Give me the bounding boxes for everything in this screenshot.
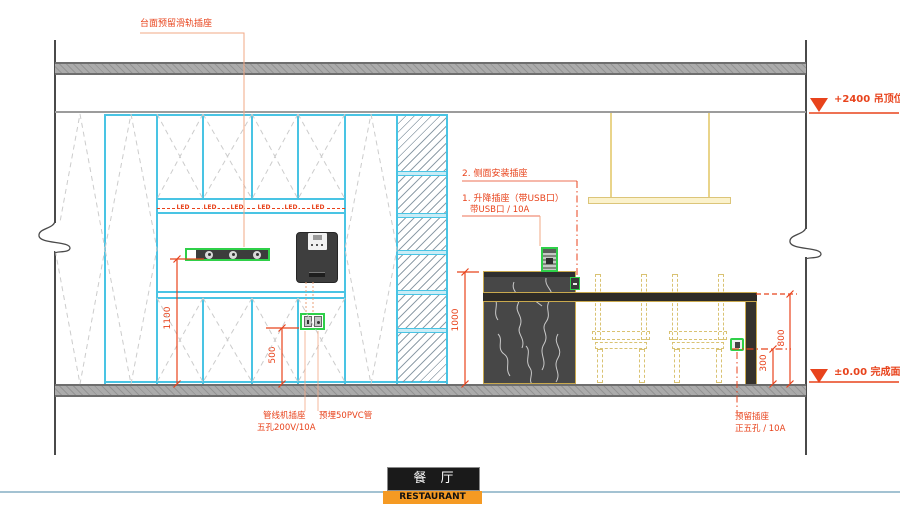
cabinet-vline [104, 114, 106, 384]
led-label: LED [284, 204, 299, 211]
cabinet-divider [202, 298, 204, 384]
rail-socket-outlet-icon [205, 251, 213, 259]
room-title-en: RESTAURANT [383, 491, 482, 504]
led-label: LED [203, 204, 218, 211]
dim-1100: 1100 [163, 298, 175, 338]
dim-300: 300 [759, 343, 771, 383]
annotation-lift-socket-line1: 1. 升降插座（带USB口） [462, 195, 564, 205]
pipeline-water-dispenser [296, 232, 338, 283]
dining-chair [592, 273, 650, 384]
cabinet-divider [297, 114, 299, 199]
side-mounted-socket [570, 277, 580, 290]
cabinet-divider [251, 114, 253, 199]
elevation-drawing-canvas: LED LED LED LED LED LED [0, 0, 900, 506]
annotation-rail-socket: 台面预留滑轨插座 [140, 20, 212, 30]
lift-pop-up-socket [541, 247, 558, 272]
ceiling-level-text: +2400 吊顶位 [834, 94, 900, 105]
annotation-reserved-socket-line1: 预留插座 [735, 413, 769, 422]
ceiling-level-marker-icon [810, 98, 828, 112]
upper-cabinet-bottom-line [156, 212, 346, 214]
table-leg [745, 302, 757, 384]
marble-island [483, 271, 576, 384]
glass-cabinet-vline [446, 114, 448, 384]
glass-shelf [398, 328, 446, 333]
socket-icon [314, 316, 322, 327]
pendant-cord-left [610, 113, 612, 198]
cabinet-divider [297, 298, 299, 384]
dim-800: 800 [777, 318, 789, 358]
glass-shelf [398, 213, 446, 218]
dining-chair [669, 273, 727, 384]
led-label: LED [311, 204, 326, 211]
usb-port-icon [546, 258, 553, 264]
floor-level-marker-icon [810, 369, 828, 383]
suspended-ceiling-line [55, 111, 806, 113]
counter-line [156, 291, 346, 293]
floor-slab [55, 384, 806, 397]
rail-socket-outlet-icon [229, 251, 237, 259]
annotation-lift-socket-line2: 带USB口 / 10A [470, 206, 529, 215]
cabinet-vline [344, 114, 346, 384]
led-strip-line: LED LED LED LED LED LED [157, 208, 345, 209]
cabinet-divider [251, 298, 253, 384]
rail-socket-outlet-icon [253, 251, 261, 259]
annotation-pipeline-socket-line1: 管线机插座 [263, 412, 306, 421]
led-label: LED [230, 204, 245, 211]
socket-icon [304, 316, 312, 327]
cabinet-socket-pair [300, 313, 325, 330]
ceiling-slab [55, 62, 806, 75]
pendant-cord-right [708, 113, 710, 198]
dim-500: 500 [268, 335, 280, 375]
annotation-pipeline-socket-line2: 五孔200V/10A [257, 424, 316, 433]
dim-1000: 1000 [451, 300, 463, 340]
cabinet-bottom-line [104, 381, 448, 383]
glass-shelf [398, 250, 446, 255]
marble-veins [484, 272, 576, 384]
annotation-side-socket: 2. 侧面安装插座 [462, 170, 527, 180]
dispenser-tray [309, 272, 325, 277]
room-title-cn: 餐 厅 [387, 467, 480, 491]
glass-shelf [398, 290, 446, 295]
table-top [483, 292, 757, 302]
annotation-pvc-pipe: 预埋50PVC管 [319, 412, 372, 421]
glass-shelf [398, 171, 446, 176]
dispenser-panel [308, 233, 327, 250]
island-countertop-edge [484, 272, 576, 277]
cabinet-top-line [104, 114, 448, 116]
upper-cabinet-bottom-line [156, 198, 346, 200]
rail-socket-endcap [187, 250, 196, 259]
reserved-wall-socket [730, 338, 744, 351]
cabinet-vline [156, 114, 158, 384]
floor-level-text: ±0.00 完成面 [834, 367, 900, 378]
annotation-reserved-socket-line2: 正五孔 / 10A [735, 425, 785, 434]
led-label: LED [257, 204, 272, 211]
glass-hatch-panel [398, 116, 446, 382]
counter-line [156, 297, 346, 299]
rail-track-socket [185, 248, 270, 261]
cabinet-divider [202, 114, 204, 199]
pendant-bar-light [588, 197, 731, 204]
led-label: LED [176, 204, 191, 211]
